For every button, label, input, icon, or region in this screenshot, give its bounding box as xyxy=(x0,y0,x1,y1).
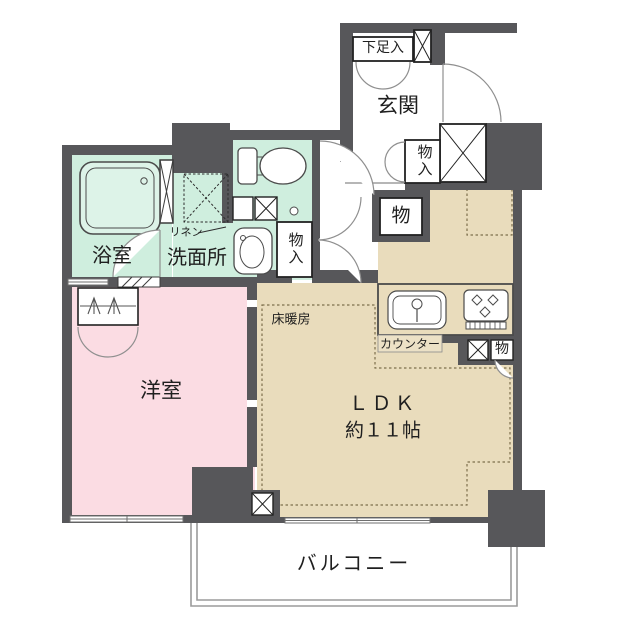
ldk-floor-upper xyxy=(378,242,513,287)
wall-block-right-of-ps xyxy=(486,123,542,183)
label-bathroom: 浴室 xyxy=(92,246,132,266)
door-arc-shoe-right xyxy=(383,62,410,89)
label-floor-heating: 床暖房 xyxy=(271,313,310,326)
label-counter: カウンター xyxy=(380,338,440,350)
label-hall-closet: 物 xyxy=(391,207,410,226)
label-bedroom: 洋室 xyxy=(140,381,182,402)
door-arc-entrance-closet-top xyxy=(385,142,405,162)
wall-bedroom-ldk xyxy=(247,283,257,467)
wall-block-bedroom-corner xyxy=(192,467,253,523)
wall-hall-left xyxy=(312,130,320,283)
label-ldk-name: ＬＤＫ xyxy=(349,394,418,414)
wall-corner-pillar xyxy=(488,490,545,547)
wall-ldk-right xyxy=(513,180,522,492)
bathtub xyxy=(80,162,160,234)
label-linen: リネン xyxy=(170,228,203,239)
label-washroom: 洗面所 xyxy=(167,248,227,268)
wall-entrance-left xyxy=(340,23,353,162)
door-arc-shoe-left xyxy=(356,62,383,89)
door-arc-toilet xyxy=(320,141,374,195)
wall-toilet-top xyxy=(225,130,353,140)
label-entrance: 玄関 xyxy=(377,96,419,117)
kitchen-sink xyxy=(388,291,446,329)
label-ldk-size: 約１１帖 xyxy=(345,422,421,441)
label-balcony: バルコニー xyxy=(297,554,412,574)
door-arc-washroom xyxy=(318,197,361,240)
kitchen-stove xyxy=(464,290,508,329)
floor-plan: 下足入 玄関 物入 物 洗面所 リネン 物入 浴室 洋室 ＬＤＫ 約１１帖 床暖… xyxy=(0,0,621,633)
label-entrance-closet: 物入 xyxy=(416,144,431,178)
toilet xyxy=(238,148,306,184)
front-door-arc xyxy=(443,64,501,122)
wash-basin xyxy=(234,228,272,274)
wall-hall-bottom-right xyxy=(313,270,378,283)
label-washroom-closet: 物入 xyxy=(287,232,302,266)
door-knob xyxy=(290,207,298,215)
wall-block-washroom-top xyxy=(172,123,230,173)
label-kitchen-closet: 物 xyxy=(495,343,509,357)
door-arc-entrance-closet-bottom xyxy=(385,162,405,182)
ldk-floor-top xyxy=(430,190,513,245)
wall-outer-left xyxy=(62,145,72,523)
service-box xyxy=(233,197,253,220)
wall-top-block xyxy=(430,23,445,65)
wall-bath-top xyxy=(62,145,172,155)
label-shoe-cabinet: 下足入 xyxy=(362,42,404,56)
